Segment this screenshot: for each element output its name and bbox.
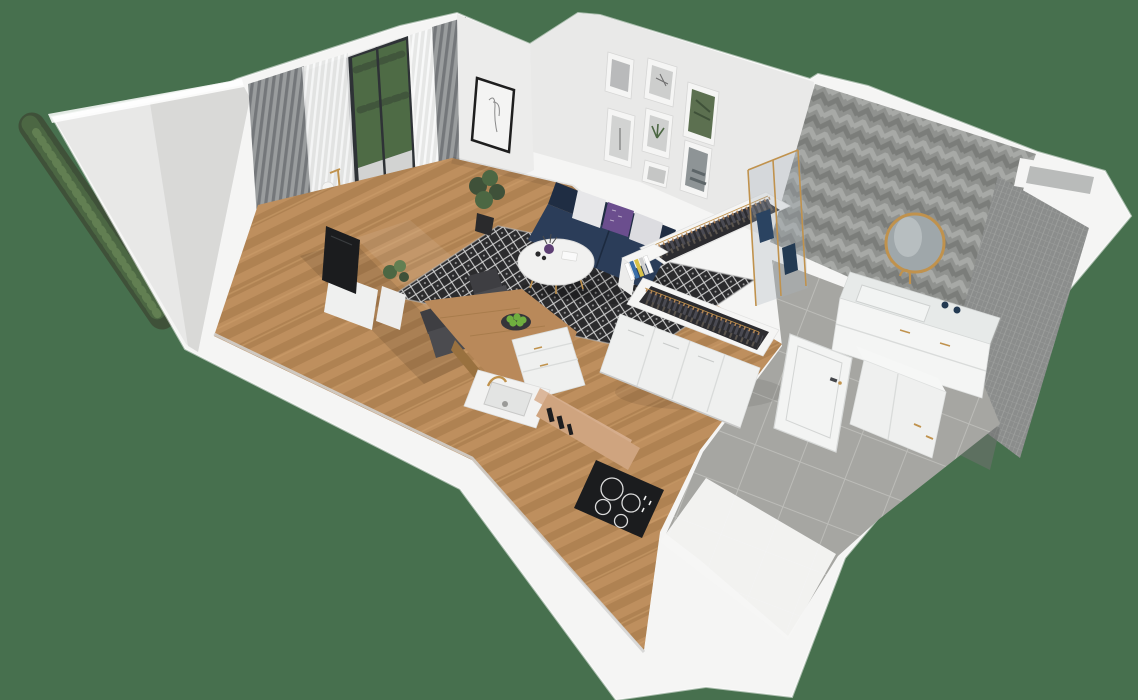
floorplan-svg [0,0,1138,700]
portrait-frame [472,78,514,152]
fruit-bowl [501,313,531,330]
soap-bottle [942,302,949,309]
floorplan-render [0,0,1138,700]
gallery-frame-6 [680,140,712,199]
soap-bottle [954,307,961,314]
gallery-frame-1 [605,52,634,99]
gallery-frame-2 [644,58,677,107]
door-handle [838,381,842,385]
gallery-frame-5 [642,108,673,159]
vase [544,244,554,254]
round-mirror [886,214,944,272]
gallery-frame-4 [604,108,635,168]
gallery-frame-3 [683,82,719,146]
shower [748,150,808,306]
